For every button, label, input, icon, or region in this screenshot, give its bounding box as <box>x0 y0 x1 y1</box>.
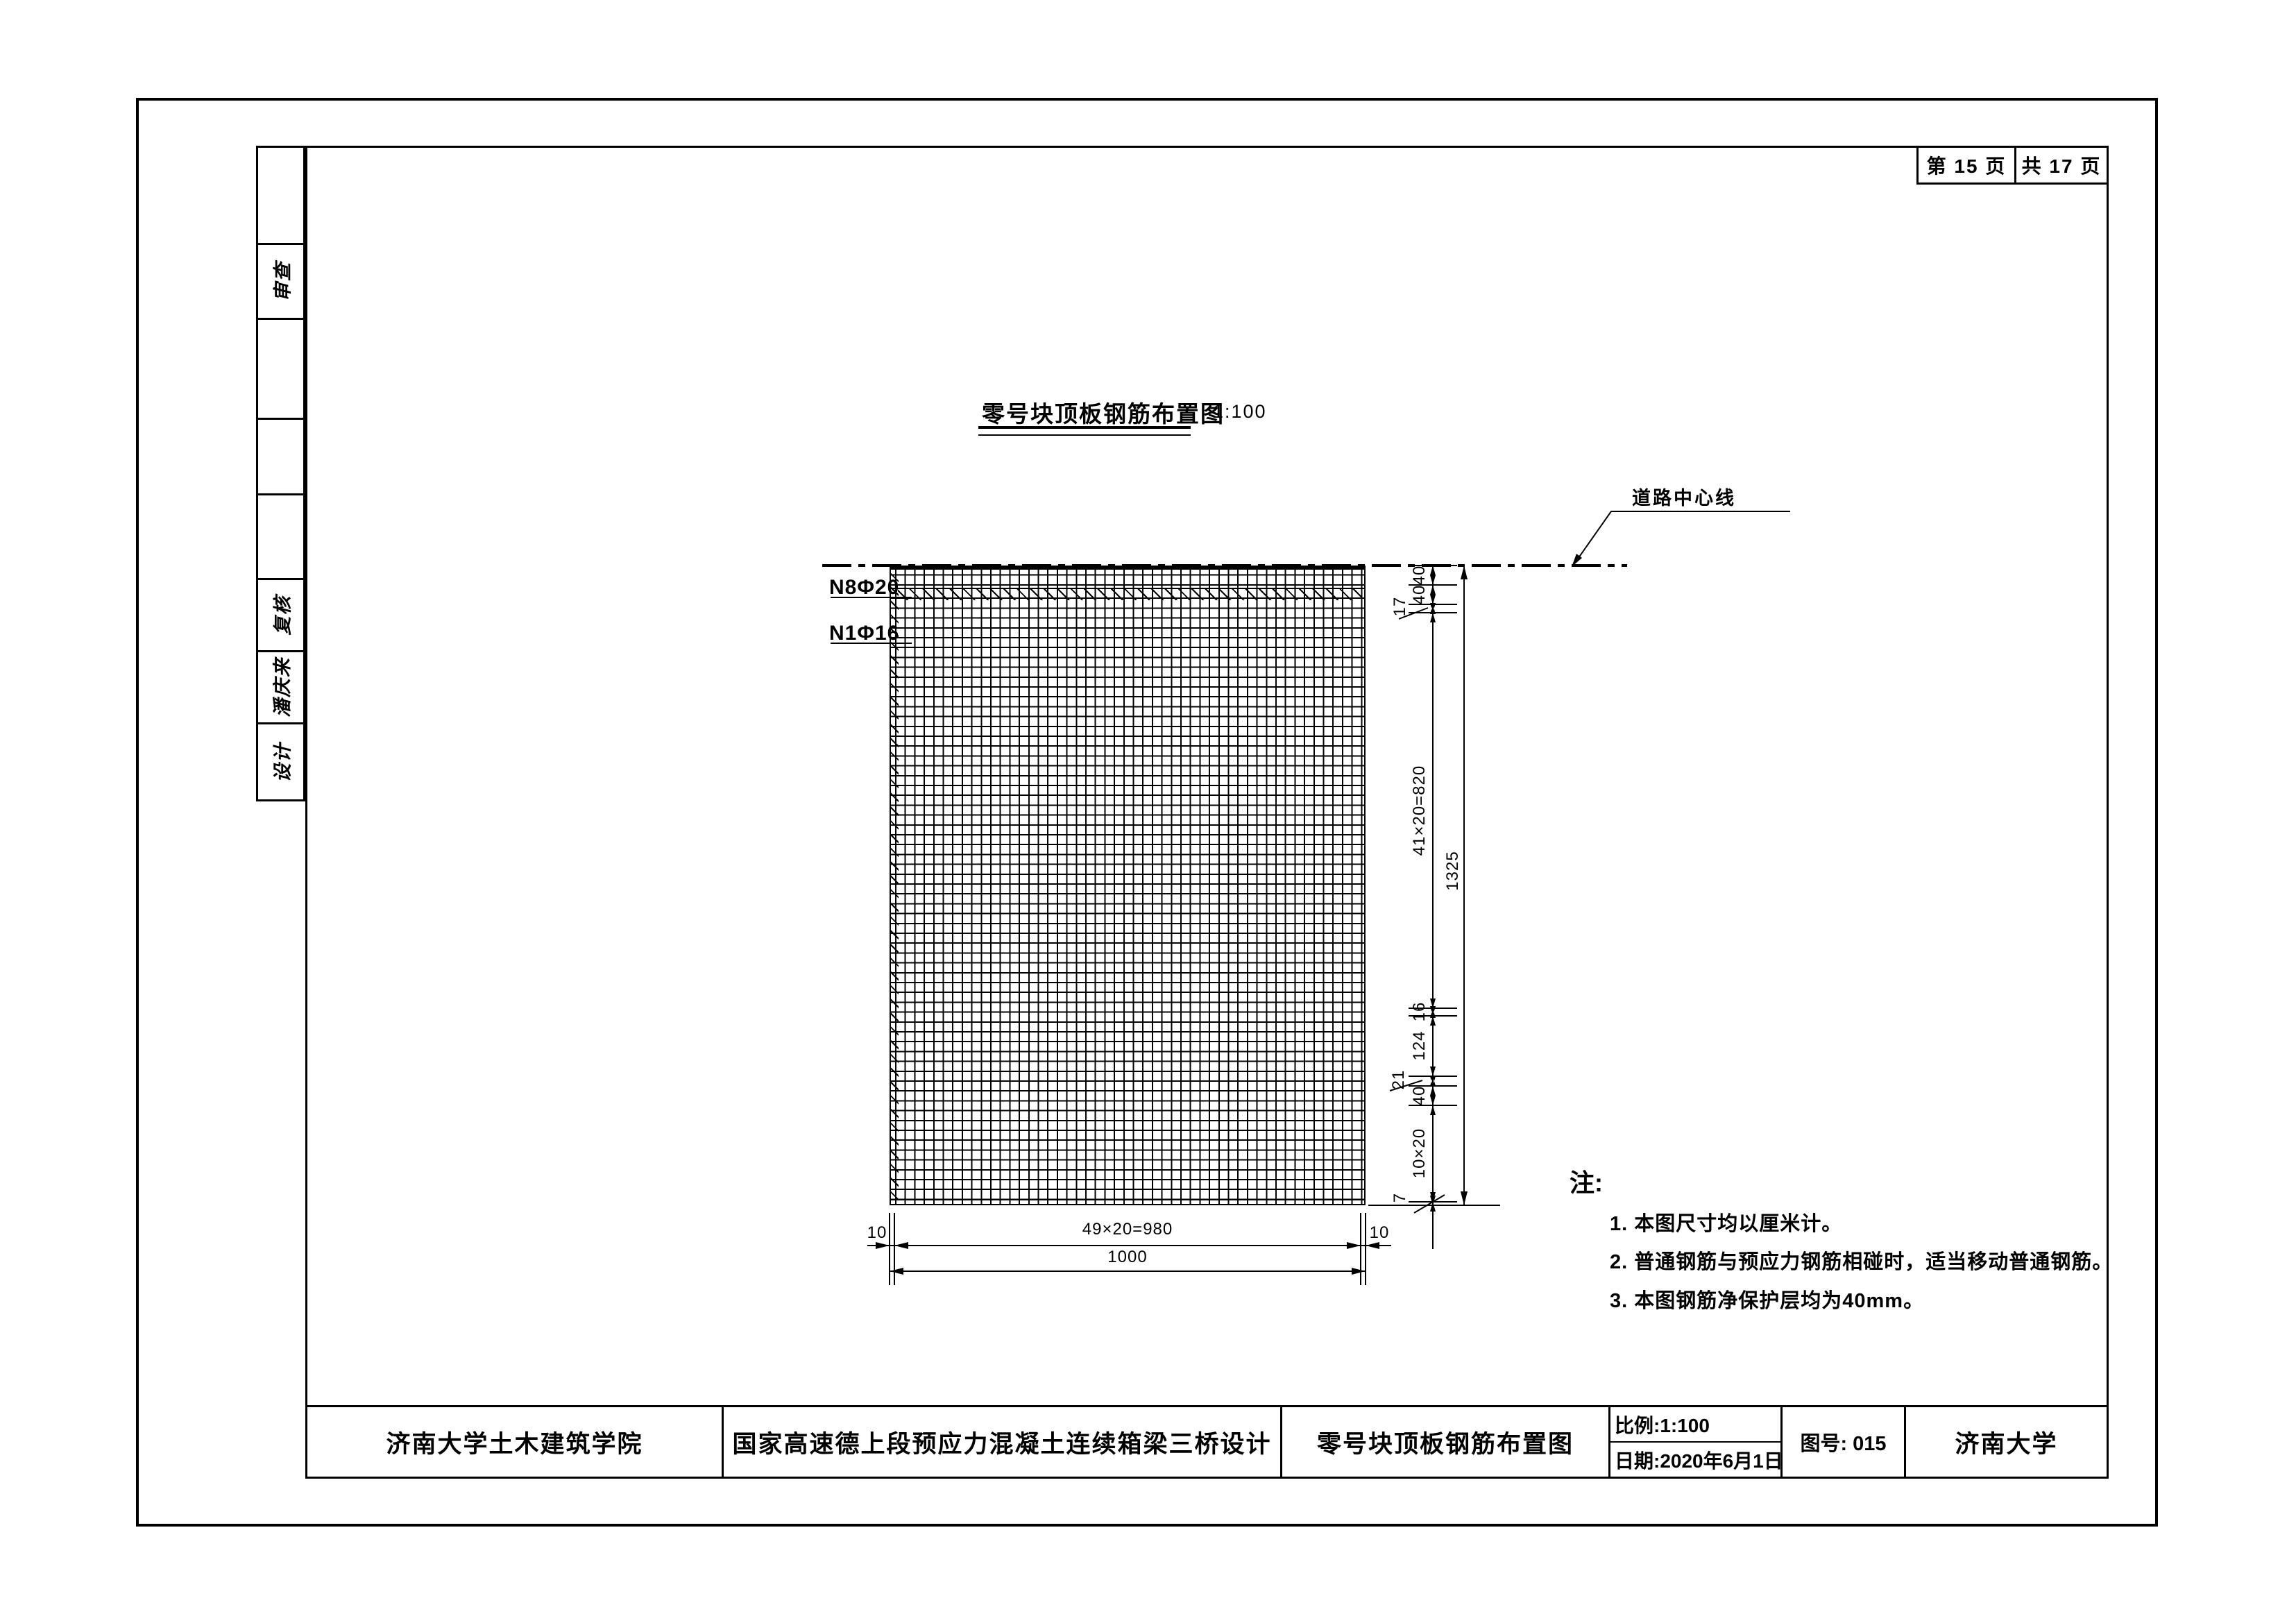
dim-17: 17 <box>1391 551 1410 662</box>
title-block-project: 国家高速德上段预应力混凝土连续箱梁三桥设计 <box>724 1407 1282 1477</box>
sidebar-label-design: 设计 <box>267 742 294 782</box>
title-block-number: 图号: 015 <box>1783 1407 1906 1477</box>
road-centerline-label: 道路中心线 <box>1632 483 1736 510</box>
revision-sidebar: 审查 复核 潘庆来 设计 <box>256 146 305 801</box>
drawing-sheet: 审查 复核 潘庆来 设计 第 15 页 共 17 页 零号块顶板钢筋布置图 1:… <box>0 0 2296 1623</box>
dimension-lines <box>822 511 1790 1285</box>
note-item-3: 3. 本图钢筋净保护层均为40mm。 <box>1610 1284 1924 1314</box>
title-block-date: 日期:2020年6月1日 <box>1610 1443 1780 1477</box>
dim-41x20: 41×20=820 <box>1410 755 1429 866</box>
drawing-annotations <box>763 416 1804 1318</box>
dim-49x20: 49×20=980 <box>1072 1220 1183 1239</box>
page-number-box: 第 15 页 共 17 页 <box>1916 146 2109 185</box>
dimension-arrowheads <box>876 554 1582 1275</box>
title-block-university: 济南大学 <box>1906 1407 2107 1477</box>
title-block-college: 济南大学土木建筑学院 <box>307 1407 724 1477</box>
sidebar-cell-blank <box>258 148 303 245</box>
dim-10x20: 10×20 <box>1410 1098 1429 1209</box>
note-item-1: 1. 本图尺寸均以厘米计。 <box>1610 1207 1842 1237</box>
sidebar-cell-name: 潘庆来 <box>258 652 303 724</box>
sheet-number: 第 15 页 <box>1919 148 2016 182</box>
dim-10-right: 10 <box>1324 1223 1435 1243</box>
title-block-scale-date: 比例:1:100 日期:2020年6月1日 <box>1610 1407 1783 1477</box>
title-block-drawing-name: 零号块顶板钢筋布置图 <box>1282 1407 1610 1477</box>
sidebar-cell-blank <box>258 420 303 495</box>
title-block-scale: 比例:1:100 <box>1610 1407 1780 1443</box>
dim-total-1000: 1000 <box>1072 1248 1183 1267</box>
sidebar-cell-blank <box>258 320 303 420</box>
sidebar-cell-blank <box>258 495 303 580</box>
sidebar-label-review: 审查 <box>267 262 294 302</box>
title-block: 济南大学土木建筑学院 国家高速德上段预应力混凝土连续箱梁三桥设计 零号块顶板钢筋… <box>305 1405 2109 1479</box>
note-item-2: 2. 普通钢筋与预应力钢筋相碰时，适当移动普通钢筋。 <box>1610 1246 2113 1275</box>
sidebar-label-check: 复核 <box>267 595 294 636</box>
sidebar-cell-check: 复核 <box>258 580 303 652</box>
rebar-label-n8: N8Φ20 <box>829 576 899 600</box>
dim-40-b: 40 <box>1410 539 1429 650</box>
dim-21: 21 <box>1389 1024 1409 1135</box>
leader-centerline <box>1575 511 1790 563</box>
sidebar-label-name: 潘庆来 <box>267 657 294 717</box>
sidebar-cell-review: 审查 <box>258 245 303 320</box>
sidebar-cell-design: 设计 <box>258 724 303 799</box>
dim-10-left: 10 <box>822 1223 933 1243</box>
sheet-total: 共 17 页 <box>2016 148 2107 182</box>
dim-total-1325: 1325 <box>1443 815 1463 926</box>
notes-heading: 注: <box>1570 1163 1603 1199</box>
rebar-label-n1: N1Φ16 <box>829 622 899 645</box>
